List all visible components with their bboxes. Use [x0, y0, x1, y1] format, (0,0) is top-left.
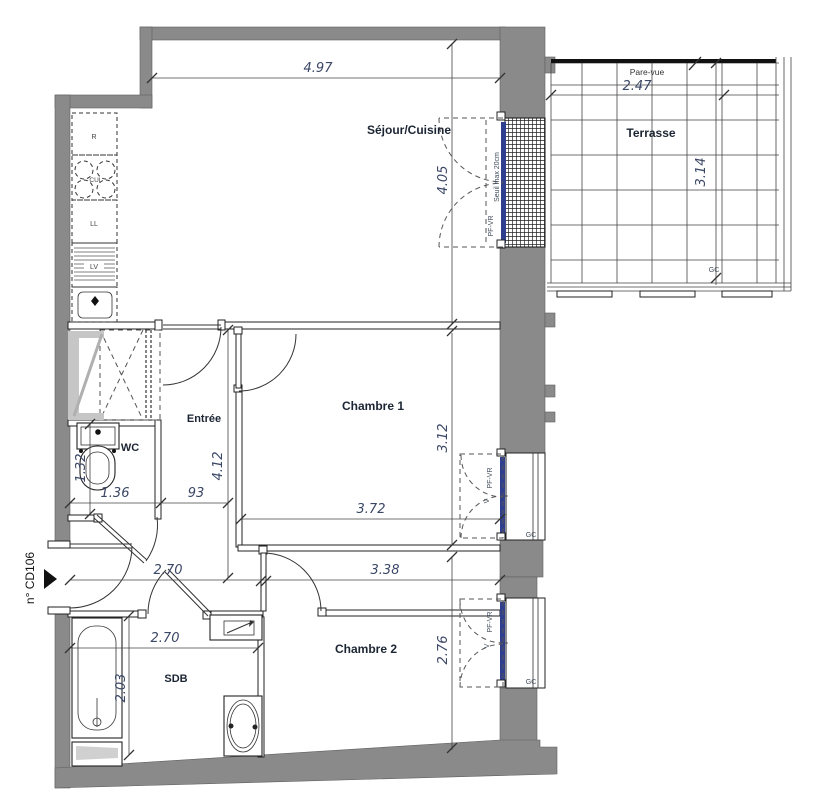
svg-text:1.32: 1.32 [74, 454, 89, 483]
dim-chambre1-width: 3.72 [236, 502, 505, 524]
room-label-entree: Entrée [187, 413, 221, 425]
pare-vue-screen [551, 59, 776, 63]
pf-vr-label-w1: PF-VR [487, 468, 494, 489]
room-label-sejour: Séjour/Cuisine [367, 123, 451, 137]
dim-chambre2-width: 3.38 [371, 563, 400, 578]
gc-label-terrace: GC [709, 267, 720, 274]
hob-label: CUI [89, 177, 100, 184]
room-label-wc: WC [121, 442, 139, 454]
technical-duct [68, 331, 104, 420]
electrical-box [210, 615, 262, 640]
svg-text:2.47: 2.47 [623, 79, 653, 94]
sink-faucet-icon [91, 296, 99, 306]
dim-vertical-chain: 4.05 3.12 2.76 [436, 39, 457, 753]
dim-hall-length: 2.70 [154, 563, 183, 578]
dim-entree-length: 4.12 [211, 325, 233, 583]
terrace-tile-grid [551, 57, 779, 283]
bottom-wall [55, 740, 557, 788]
room-label-sdb: SDB [164, 673, 187, 685]
washer-label: LL [90, 221, 98, 228]
terrace: Pare-vue Terrasse GC 2.47 3.14 [546, 57, 791, 297]
door-chambre1 [236, 334, 296, 391]
room-label-chambre2: Chambre 2 [335, 642, 397, 656]
kitchen-appliances [72, 113, 117, 322]
bay-window-sejour: Seuil max 20cm PF-VR [439, 112, 545, 248]
svg-text:3.72: 3.72 [357, 502, 386, 517]
dishwasher-label: LV [90, 264, 98, 271]
svg-text:4.12: 4.12 [211, 452, 226, 481]
window-chambre2: PF-VR V GC [460, 594, 545, 688]
lot-reference: n° CD106 [23, 552, 37, 604]
svg-text:2.70: 2.70 [151, 631, 180, 646]
door-sejour-entree [163, 325, 221, 385]
v-label-w2: V [484, 643, 491, 648]
pf-vr-label-bay: PF-VR [488, 216, 495, 237]
window-chambre1: PF-VR V GC [460, 449, 545, 540]
closet-sliding-rail [146, 330, 151, 420]
dim-chambre1-height: 3.12 [436, 424, 451, 453]
bath-cabinet [72, 742, 122, 766]
door-entrance [70, 544, 132, 608]
floor-plan-page: Pare-vue Terrasse GC 2.47 3.14 [0, 0, 815, 800]
door-chambre2 [261, 553, 321, 611]
pf-vr-label-w2: PF-VR [487, 612, 494, 633]
room-label-chambre1: Chambre 1 [342, 399, 404, 413]
outer-walls [55, 27, 557, 788]
entrance-arrow-icon [44, 569, 57, 589]
room-labels: Séjour/Cuisine Entrée Chambre 1 WC SDB C… [121, 123, 451, 685]
dim-terrasse-height: 3.14 [694, 58, 721, 285]
dim-sejour-height: 4.05 [436, 166, 451, 195]
terrace-railing [547, 57, 791, 297]
door-wc [94, 515, 158, 563]
dim-hall-width: 93 [188, 486, 205, 501]
entry-threshold-top [48, 541, 70, 548]
pare-vue-label: Pare-vue [630, 67, 665, 77]
dimensions: 4.97 4.05 3.12 2.76 4.12 1.36 93 1.32 [65, 39, 505, 760]
entree-closet [100, 330, 160, 420]
floor-plan-drawing: Pare-vue Terrasse GC 2.47 3.14 [0, 0, 815, 800]
room-label-terrasse: Terrasse [626, 126, 675, 140]
svg-text:3.14: 3.14 [694, 158, 709, 187]
svg-text:4.97: 4.97 [304, 61, 334, 76]
dim-chambre2-height: 2.76 [436, 636, 451, 665]
dim-wc-width: 1.36 [101, 486, 130, 501]
bay-window-glazing [501, 122, 506, 243]
seuil-label: Seuil max 20cm [494, 152, 501, 202]
washbasin [224, 696, 262, 756]
v-label-w1: V [484, 498, 491, 503]
gc-label-w2: GC [526, 679, 537, 686]
dim-terrasse-width: 2.47 [546, 79, 779, 100]
dim-sejour-width: 4.97 [147, 61, 505, 83]
fridge-label: R [91, 134, 96, 141]
entrance-marker: n° CD106 [23, 552, 57, 604]
gc-label-w1: GC [526, 532, 537, 539]
svg-text:2.03: 2.03 [114, 674, 129, 703]
entry-threshold-bottom [48, 607, 70, 614]
dim-hall-chain: 2.70 3.38 [65, 563, 505, 586]
